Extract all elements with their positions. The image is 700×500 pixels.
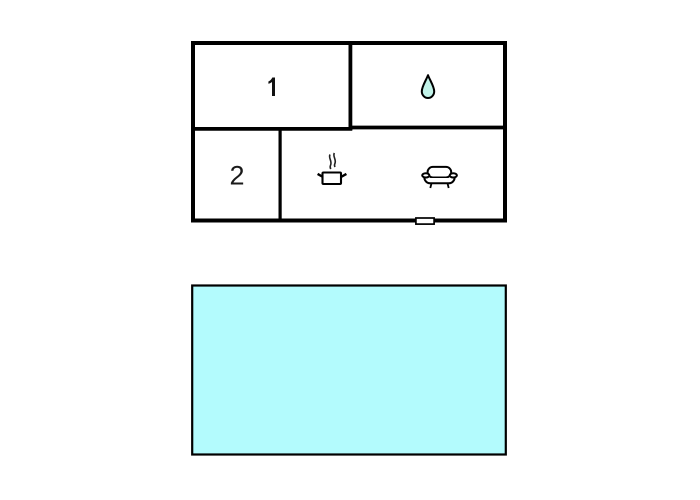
svg-text:2: 2 [229,160,244,190]
